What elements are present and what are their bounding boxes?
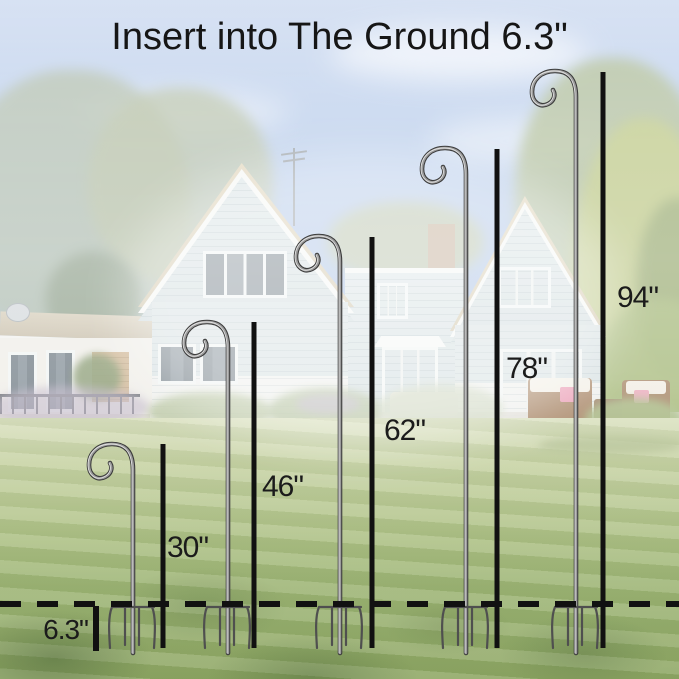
label-78: 78" <box>506 354 547 384</box>
depth-marker-line <box>93 606 99 651</box>
product-infographic: Insert into The Ground 6.3" 30" 46" 62" … <box>0 0 679 679</box>
page-title: Insert into The Ground 6.3" <box>0 16 679 59</box>
measure-line-46 <box>252 322 257 648</box>
depth-label: 6.3" <box>36 616 88 644</box>
shepherd-hook-62 <box>295 236 362 653</box>
label-46: 46" <box>262 472 303 502</box>
measurement-overlay <box>0 0 679 679</box>
shepherd-hook-78 <box>421 148 488 653</box>
label-30: 30" <box>167 533 208 563</box>
measure-line-78 <box>495 149 500 648</box>
measure-line-30 <box>161 444 166 648</box>
measure-line-62 <box>370 237 375 648</box>
measure-line-94 <box>601 72 606 648</box>
label-94: 94" <box>617 283 658 313</box>
label-62: 62" <box>384 416 425 446</box>
